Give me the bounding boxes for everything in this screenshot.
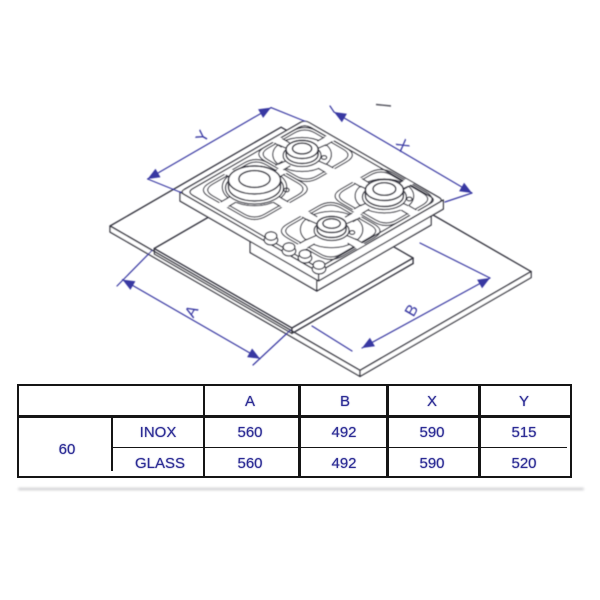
- svg-text:A: A: [182, 303, 202, 321]
